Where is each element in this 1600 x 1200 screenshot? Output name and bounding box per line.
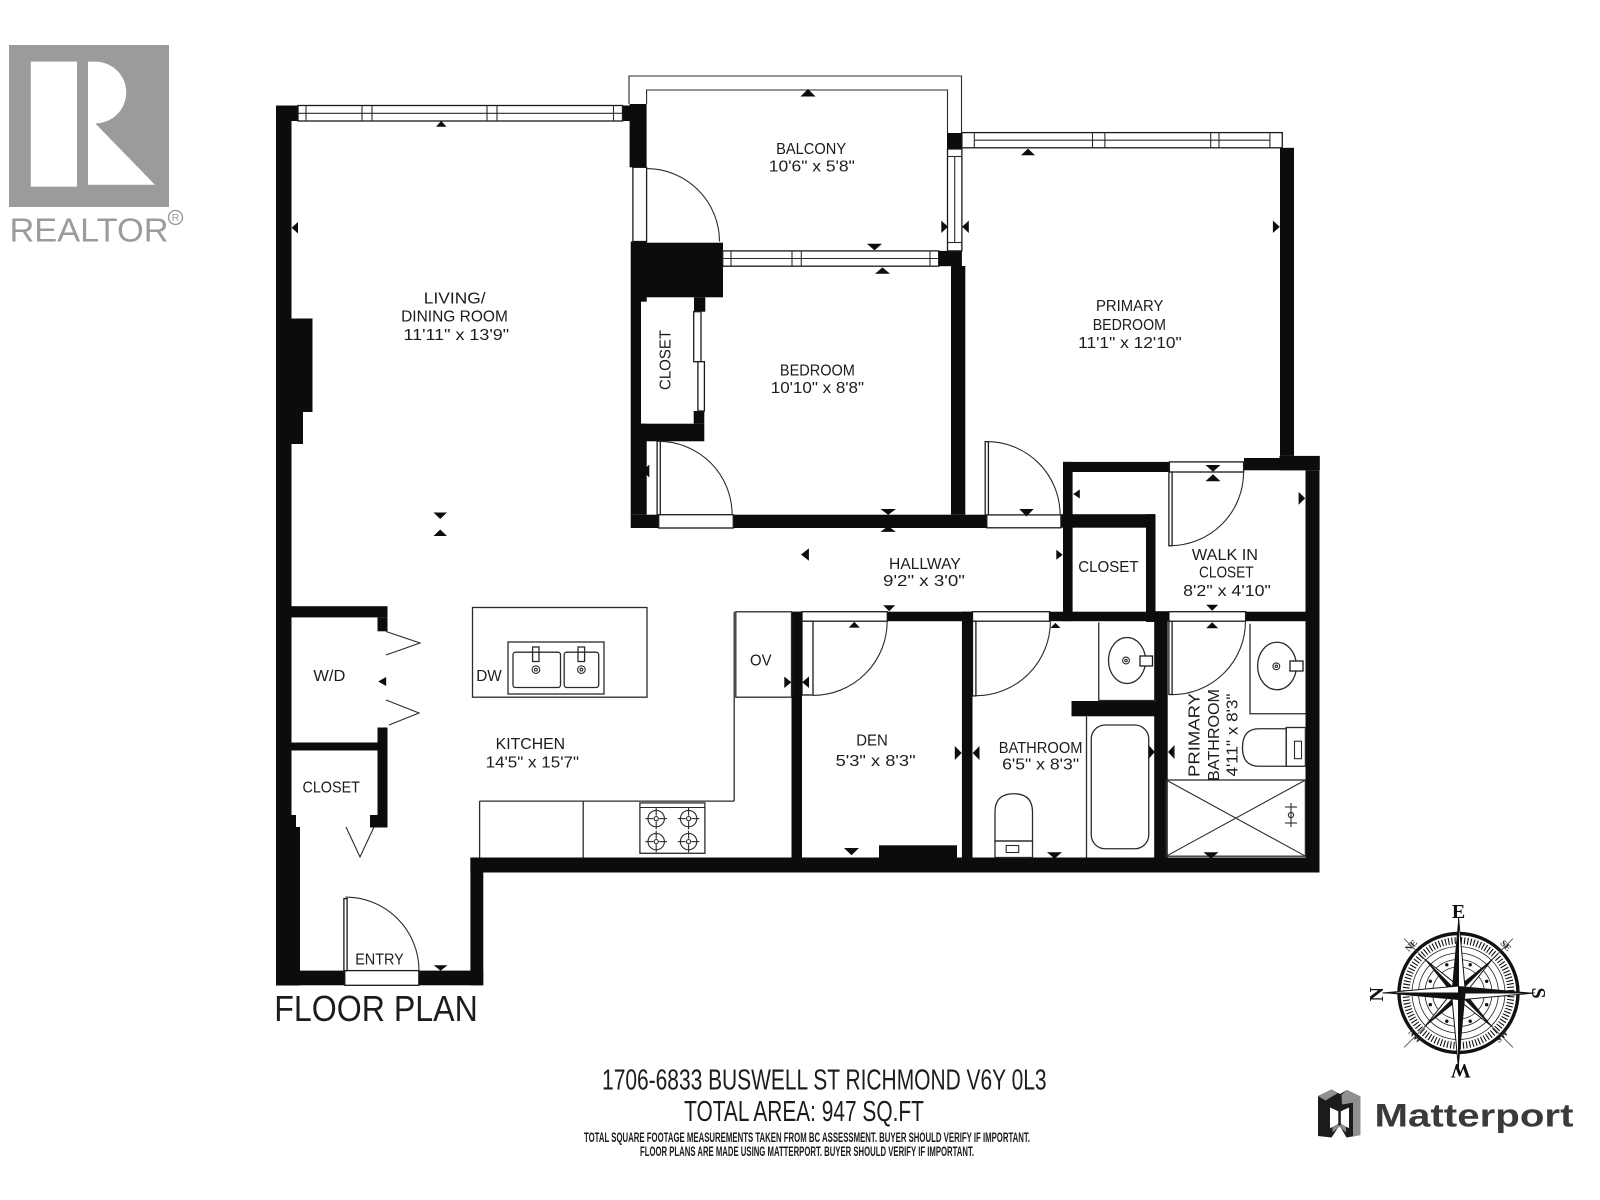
svg-text:E: E bbox=[1452, 901, 1465, 923]
svg-text:W/D: W/D bbox=[313, 668, 345, 685]
svg-text:9'2" x 3'0": 9'2" x 3'0" bbox=[883, 573, 965, 590]
svg-text:FLOOR PLAN: FLOOR PLAN bbox=[274, 988, 478, 1029]
svg-text:LIVING/: LIVING/ bbox=[424, 290, 487, 307]
svg-text:BATHROOM: BATHROOM bbox=[999, 740, 1083, 757]
svg-text:R: R bbox=[172, 212, 180, 224]
svg-text:REALTOR: REALTOR bbox=[10, 211, 169, 248]
svg-text:PRIMARY: PRIMARY bbox=[1187, 693, 1204, 777]
svg-text:10'10" x 8'8": 10'10" x 8'8" bbox=[771, 380, 864, 397]
svg-text:CLOSET: CLOSET bbox=[302, 780, 360, 797]
svg-text:8'2" x 4'10": 8'2" x 4'10" bbox=[1183, 583, 1271, 600]
svg-text:5'3" x 8'3": 5'3" x 8'3" bbox=[836, 753, 916, 770]
svg-text:PRIMARY: PRIMARY bbox=[1096, 298, 1163, 315]
svg-text:DEN: DEN bbox=[856, 733, 888, 750]
svg-text:11'1" x 12'10": 11'1" x 12'10" bbox=[1078, 335, 1182, 352]
svg-text:4'11" x 8'3": 4'11" x 8'3" bbox=[1225, 694, 1242, 777]
svg-text:TOTAL AREA: 947 SQ.FT: TOTAL AREA: 947 SQ.FT bbox=[684, 1096, 924, 1128]
svg-text:BATHROOM: BATHROOM bbox=[1206, 689, 1223, 781]
svg-text:CLOSET: CLOSET bbox=[658, 329, 675, 390]
svg-text:TOTAL SQUARE FOOTAGE MEASUREME: TOTAL SQUARE FOOTAGE MEASUREMENTS TAKEN … bbox=[584, 1130, 1030, 1145]
svg-text:HALLWAY: HALLWAY bbox=[889, 556, 961, 573]
svg-text:6'5" x 8'3": 6'5" x 8'3" bbox=[1002, 756, 1079, 773]
svg-text:S: S bbox=[1527, 987, 1549, 998]
svg-text:WALK IN: WALK IN bbox=[1192, 547, 1258, 564]
svg-text:BEDROOM: BEDROOM bbox=[1093, 317, 1166, 334]
svg-text:1706-6833 BUSWELL ST RICHMOND: 1706-6833 BUSWELL ST RICHMOND V6Y 0L3 bbox=[602, 1065, 1047, 1097]
svg-text:OV: OV bbox=[750, 652, 772, 669]
svg-text:KITCHEN: KITCHEN bbox=[496, 736, 565, 753]
svg-text:N: N bbox=[1366, 986, 1388, 1001]
svg-text:CLOSET: CLOSET bbox=[1199, 564, 1254, 581]
svg-text:CLOSET: CLOSET bbox=[1078, 559, 1139, 576]
svg-text:10'6" x 5'8": 10'6" x 5'8" bbox=[769, 159, 855, 176]
svg-text:BEDROOM: BEDROOM bbox=[780, 362, 855, 379]
svg-text:DINING ROOM: DINING ROOM bbox=[401, 309, 508, 326]
svg-text:11'11" x 13'9": 11'11" x 13'9" bbox=[404, 327, 510, 344]
svg-text:BALCONY: BALCONY bbox=[776, 141, 846, 158]
svg-text:ENTRY: ENTRY bbox=[355, 951, 404, 968]
svg-text:W: W bbox=[1451, 1060, 1471, 1082]
svg-text:FLOOR PLANS ARE MADE USING MAT: FLOOR PLANS ARE MADE USING MATTERPORT. B… bbox=[640, 1144, 974, 1159]
svg-text:Matterport: Matterport bbox=[1375, 1098, 1574, 1134]
svg-text:DW: DW bbox=[476, 668, 502, 685]
svg-text:14'5" x 15'7": 14'5" x 15'7" bbox=[486, 754, 579, 771]
